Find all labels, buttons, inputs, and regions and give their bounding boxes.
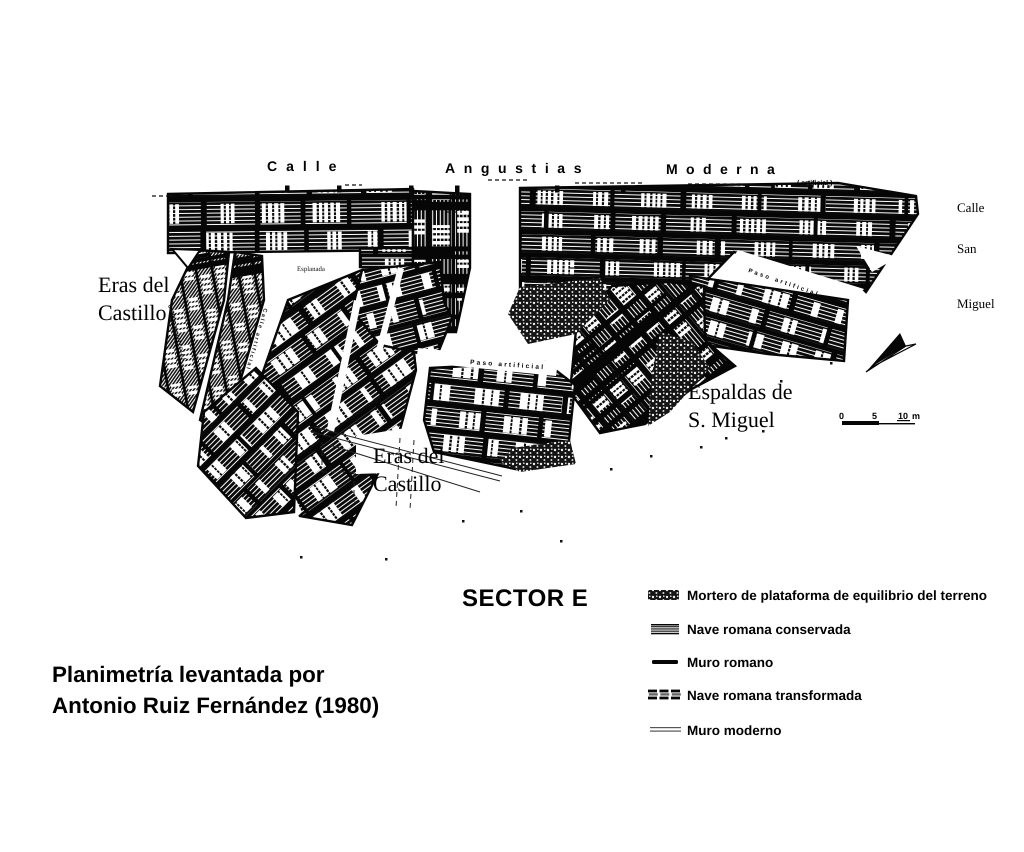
svg-text:Nave romana transformada: Nave romana transformada: [687, 688, 862, 703]
svg-text:m: m: [912, 411, 920, 421]
svg-text:SECTOR E: SECTOR E: [462, 585, 588, 612]
svg-text:Moderna: Moderna: [666, 161, 783, 177]
svg-text:Angustias: Angustias: [445, 160, 590, 176]
svg-text:Calle: Calle: [957, 200, 985, 215]
svg-text:Eras del: Eras del: [98, 272, 169, 297]
svg-text:Esplanada: Esplanada: [297, 266, 325, 273]
svg-text:Castillo: Castillo: [98, 300, 166, 325]
svg-text:Espaldas de: Espaldas de: [688, 379, 792, 404]
svg-text:Castillo: Castillo: [373, 471, 441, 496]
svg-text:Calle: Calle: [267, 158, 345, 174]
svg-text:S. Miguel: S. Miguel: [688, 407, 775, 432]
svg-text:Antonio Ruiz Fernández (1980): Antonio Ruiz Fernández (1980): [52, 693, 379, 718]
svg-text:10: 10: [898, 411, 908, 421]
svg-text:Muro moderno: Muro moderno: [687, 723, 782, 738]
svg-text:0: 0: [839, 411, 844, 421]
svg-text:Planimetría levantada por: Planimetría levantada por: [52, 662, 325, 687]
svg-text:Muro romano: Muro romano: [687, 655, 773, 670]
svg-text:Nave romana conservada: Nave romana conservada: [687, 622, 851, 637]
svg-text:Miguel: Miguel: [957, 296, 995, 311]
svg-text:5: 5: [872, 411, 877, 421]
svg-text:Mortero de plataforma de equil: Mortero de plataforma de equilibrio del …: [687, 588, 987, 603]
svg-text:Eras del: Eras del: [373, 443, 444, 468]
svg-text:San: San: [957, 241, 977, 256]
svg-text:( artificial ): ( artificial ): [797, 179, 832, 187]
